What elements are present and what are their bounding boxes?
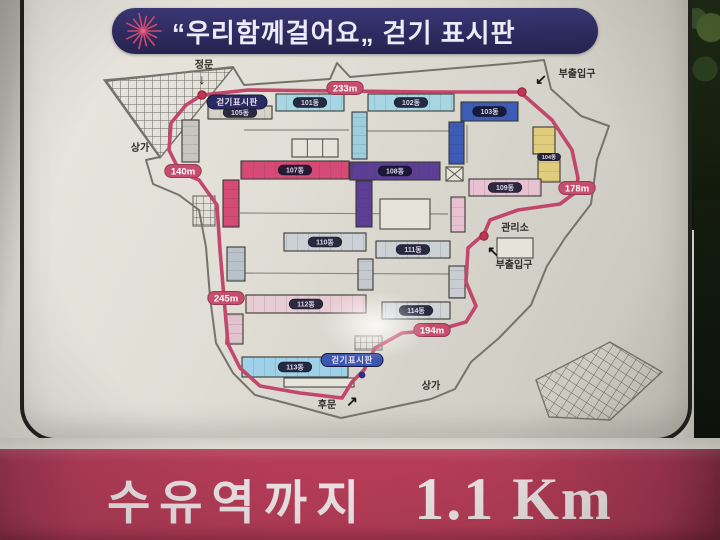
svg-text:103동: 103동 <box>480 108 499 116</box>
svg-text:108동: 108동 <box>386 168 405 176</box>
svg-text:후문: 후문 <box>318 398 336 411</box>
gate-arrow-icon: ↖ <box>487 243 499 259</box>
building-114: 114동 <box>382 302 450 319</box>
route-gate-dot-2 <box>480 232 488 240</box>
building-conn-105 <box>182 120 199 162</box>
signboard-photo: “우리함께걸어요„ 걷기 표시판 101동102동103동105동107동108… <box>0 0 720 540</box>
svg-text:114동: 114동 <box>407 307 425 315</box>
banner-station-text: 수유역까지 <box>107 463 368 540</box>
outline-structure-4 <box>284 378 354 387</box>
building-conn-right <box>449 266 465 298</box>
svg-text:상가: 상가 <box>131 141 150 154</box>
svg-text:부출입구: 부출입구 <box>559 67 596 80</box>
gate-arrow-icon: ↓ <box>199 71 206 87</box>
sign-location-dot <box>359 372 366 379</box>
building-104a <box>533 127 555 154</box>
hatched-area-3 <box>536 342 662 420</box>
building-conn-107 <box>223 180 239 227</box>
svg-text:관리소: 관리소 <box>501 221 529 234</box>
svg-text:걷기표시판: 걷기표시판 <box>216 97 258 107</box>
building-conn-102 <box>352 112 367 159</box>
route-gate-dot-0 <box>198 91 206 99</box>
distance-marker-194m: 194m <box>414 324 450 337</box>
distance-marker-233m: 233m <box>327 82 363 95</box>
svg-text:178m: 178m <box>565 183 589 194</box>
route-gate-dot-1 <box>518 88 526 96</box>
svg-text:194m: 194m <box>420 325 444 336</box>
sign-title-pill: “우리함께걸어요„ 걷기 표시판 <box>112 8 598 54</box>
map-label-6: 상가 <box>422 379 441 392</box>
distance-banner: 수유역까지 1.1 Km <box>0 449 720 540</box>
building-102: 102동 <box>368 94 454 111</box>
outline-structure-1 <box>380 199 430 229</box>
svg-text:113동: 113동 <box>286 364 304 372</box>
building-103: 103동 <box>461 102 518 121</box>
map-label-5: 상가 <box>131 141 150 154</box>
building-101: 101동 <box>276 94 344 111</box>
sign-title-text: “우리함께걸어요„ 걷기 표시판 <box>172 13 516 50</box>
map-label-3: 관리소 <box>501 221 529 234</box>
outline-structure-3 <box>497 238 533 258</box>
map-label-1: 부출입구↙ <box>535 67 595 87</box>
svg-text:109동: 109동 <box>496 184 515 192</box>
building-conn-left-a <box>227 247 245 281</box>
building-109: 109동 <box>469 179 541 196</box>
svg-text:걷기표시판: 걷기표시판 <box>331 355 373 365</box>
building-conn-109 <box>451 197 465 232</box>
svg-text:112동: 112동 <box>297 301 315 309</box>
building-conn-108 <box>356 181 372 227</box>
svg-text:111동: 111동 <box>404 246 422 254</box>
building-112: 112동 <box>246 295 366 313</box>
svg-text:부출입구: 부출입구 <box>496 258 533 271</box>
svg-text:140m: 140m <box>171 166 195 177</box>
distance-marker-245m: 245m <box>208 292 244 305</box>
svg-text:104동: 104동 <box>542 153 556 161</box>
walking-sign-oval-0: 걷기표시판 <box>207 95 267 109</box>
building-label-small: 104동 <box>537 153 561 161</box>
distance-marker-140m: 140m <box>165 165 201 178</box>
gate-arrow-icon: ↙ <box>535 71 547 87</box>
building-conn-103 <box>449 122 464 164</box>
svg-text:233m: 233m <box>333 83 357 94</box>
svg-text:101동: 101동 <box>301 99 320 107</box>
svg-text:107동: 107동 <box>286 167 305 175</box>
road-line-3 <box>236 273 450 274</box>
building-111: 111동 <box>376 241 450 258</box>
starburst-icon <box>122 10 164 52</box>
svg-text:정문: 정문 <box>195 58 213 71</box>
building-107: 107동 <box>241 161 349 179</box>
svg-text:105동: 105동 <box>231 109 250 117</box>
svg-text:상가: 상가 <box>422 379 441 392</box>
outline-structure-0 <box>292 139 338 157</box>
building-conn-111 <box>358 259 373 290</box>
gate-arrow-icon: ↗ <box>346 393 358 409</box>
banner-distance-value: 1.1 Km <box>414 459 613 539</box>
svg-text:102동: 102동 <box>402 99 421 107</box>
svg-text:245m: 245m <box>214 293 238 304</box>
building-110: 110동 <box>284 233 366 251</box>
walking-sign-oval-1: 걷기표시판 <box>321 354 383 367</box>
building-108: 108동 <box>350 162 440 180</box>
distance-marker-178m: 178m <box>559 182 595 195</box>
svg-text:110동: 110동 <box>316 239 334 247</box>
